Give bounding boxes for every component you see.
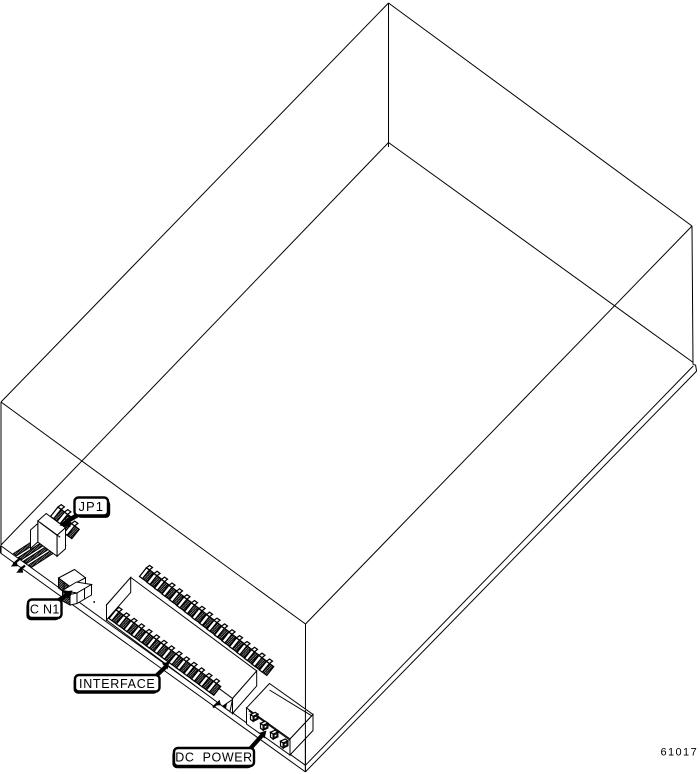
svg-text:DC POWER: DC POWER <box>175 751 253 765</box>
svg-text:INTERFACE: INTERFACE <box>79 677 155 691</box>
svg-text:C N1: C N1 <box>30 602 60 616</box>
svg-text:61017: 61017 <box>661 747 699 759</box>
svg-text:JP1: JP1 <box>79 499 104 514</box>
